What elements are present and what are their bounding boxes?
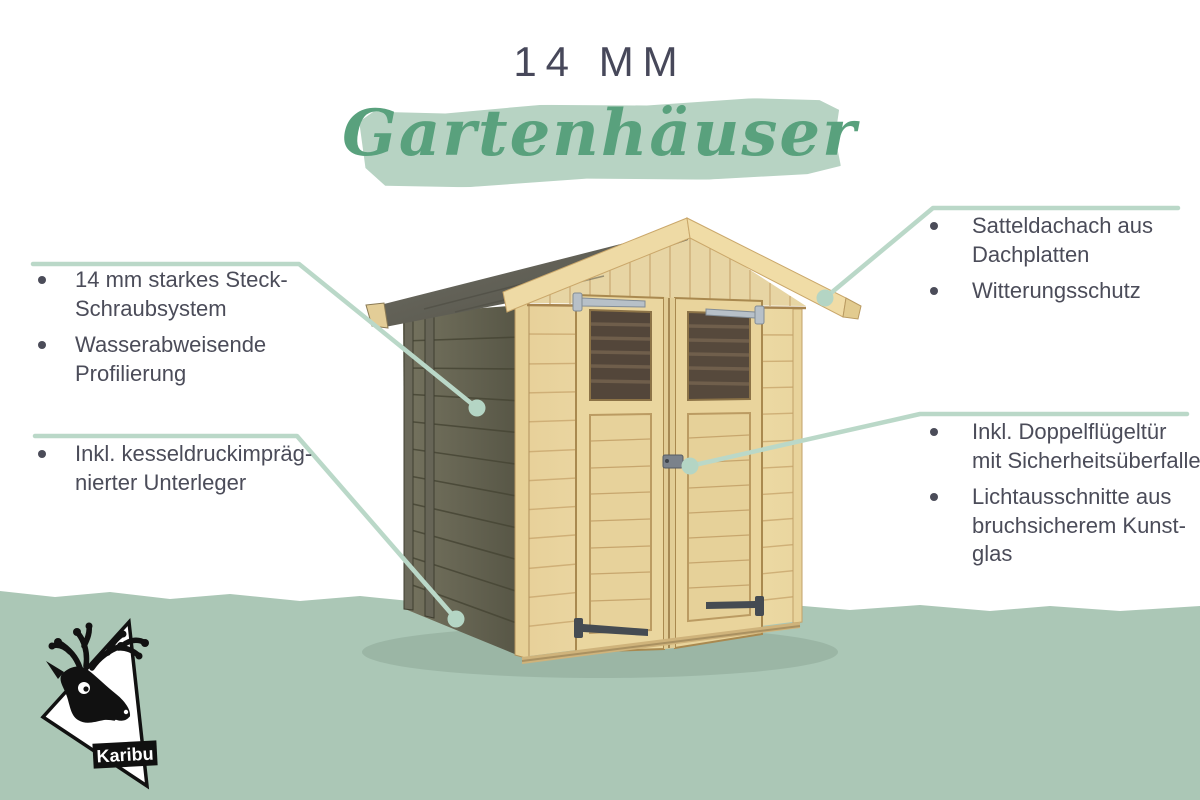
callout-door: Inkl. Doppelflügeltür mit Sicherheitsübe…	[922, 418, 1200, 577]
callout-dot-door	[682, 458, 699, 475]
feature-line: Schraubsystem	[75, 295, 288, 324]
callout-dot-side-wall	[469, 400, 486, 417]
bargeboard-right-tip	[843, 298, 861, 319]
bullet-icon	[38, 276, 46, 284]
bullet-icon	[930, 428, 938, 436]
callout-dot-foundation	[448, 611, 465, 628]
logo-wordmark: Karibu	[96, 744, 154, 767]
feature-line: Dachplatten	[972, 241, 1153, 270]
feature-line: mit Sicherheitsüberfalle	[972, 447, 1200, 476]
door-hasp-icon	[663, 455, 683, 468]
corner-batten-mid	[425, 311, 434, 618]
bullet-icon	[930, 287, 938, 295]
double-door	[573, 293, 764, 652]
feature-line: Satteldachach aus	[972, 212, 1153, 241]
corner-trim-right	[793, 309, 802, 623]
garden-shed	[366, 218, 861, 664]
feature-item: Inkl. Doppelflügeltür mit Sicherheitsübe…	[922, 418, 1200, 475]
feature-line: Profilierung	[75, 360, 266, 389]
callout-foundation: Inkl. kesseldruckimpräg- nierter Unterle…	[30, 440, 312, 505]
feature-line: Inkl. kesseldruckimpräg-	[75, 440, 312, 469]
door-right-panel	[688, 413, 750, 621]
bullet-icon	[930, 222, 938, 230]
feature-line: nierter Unterleger	[75, 469, 312, 498]
feature-item: Wasserabweisende Profilierung	[30, 331, 288, 388]
size-heading: 14 MM	[0, 38, 1200, 86]
feature-line: bruchsicherem Kunst-	[972, 512, 1186, 541]
door-left	[576, 295, 664, 652]
feature-item: Lichtausschnitte aus bruchsicherem Kunst…	[922, 483, 1200, 569]
feature-line: 14 mm starkes Steck-	[75, 266, 288, 295]
feature-line: Wasserabweisende	[75, 331, 266, 360]
feature-line: glas	[972, 540, 1186, 569]
feature-item: 14 mm starkes Steck- Schraubsystem	[30, 266, 288, 323]
bullet-icon	[38, 341, 46, 349]
feature-line: Inkl. Doppelflügeltür	[972, 418, 1200, 447]
feature-line: Lichtausschnitte aus	[972, 483, 1186, 512]
feature-item: Witterungsschutz	[922, 277, 1153, 306]
side-wall-dark	[403, 305, 522, 657]
bullet-icon	[38, 450, 46, 458]
karibu-logo: Karibu	[30, 612, 170, 797]
category-heading: Gartenhäuser	[0, 96, 1200, 171]
bullet-icon	[930, 493, 938, 501]
callout-roof: Satteldachach aus Dachplatten Witterungs…	[922, 212, 1153, 314]
feature-item: Satteldachach aus Dachplatten	[922, 212, 1153, 269]
feature-line: Witterungsschutz	[972, 277, 1141, 306]
corner-trim-left	[515, 303, 529, 659]
feature-item: Inkl. kesseldruckimpräg- nierter Unterle…	[30, 440, 312, 497]
callout-construction: 14 mm starkes Steck- Schraubsystem Wasse…	[30, 266, 288, 396]
callout-dot-roof	[817, 290, 834, 307]
infographic-canvas: 14 MM Gartenhäuser 14 mm starkes Steck- …	[0, 0, 1200, 800]
